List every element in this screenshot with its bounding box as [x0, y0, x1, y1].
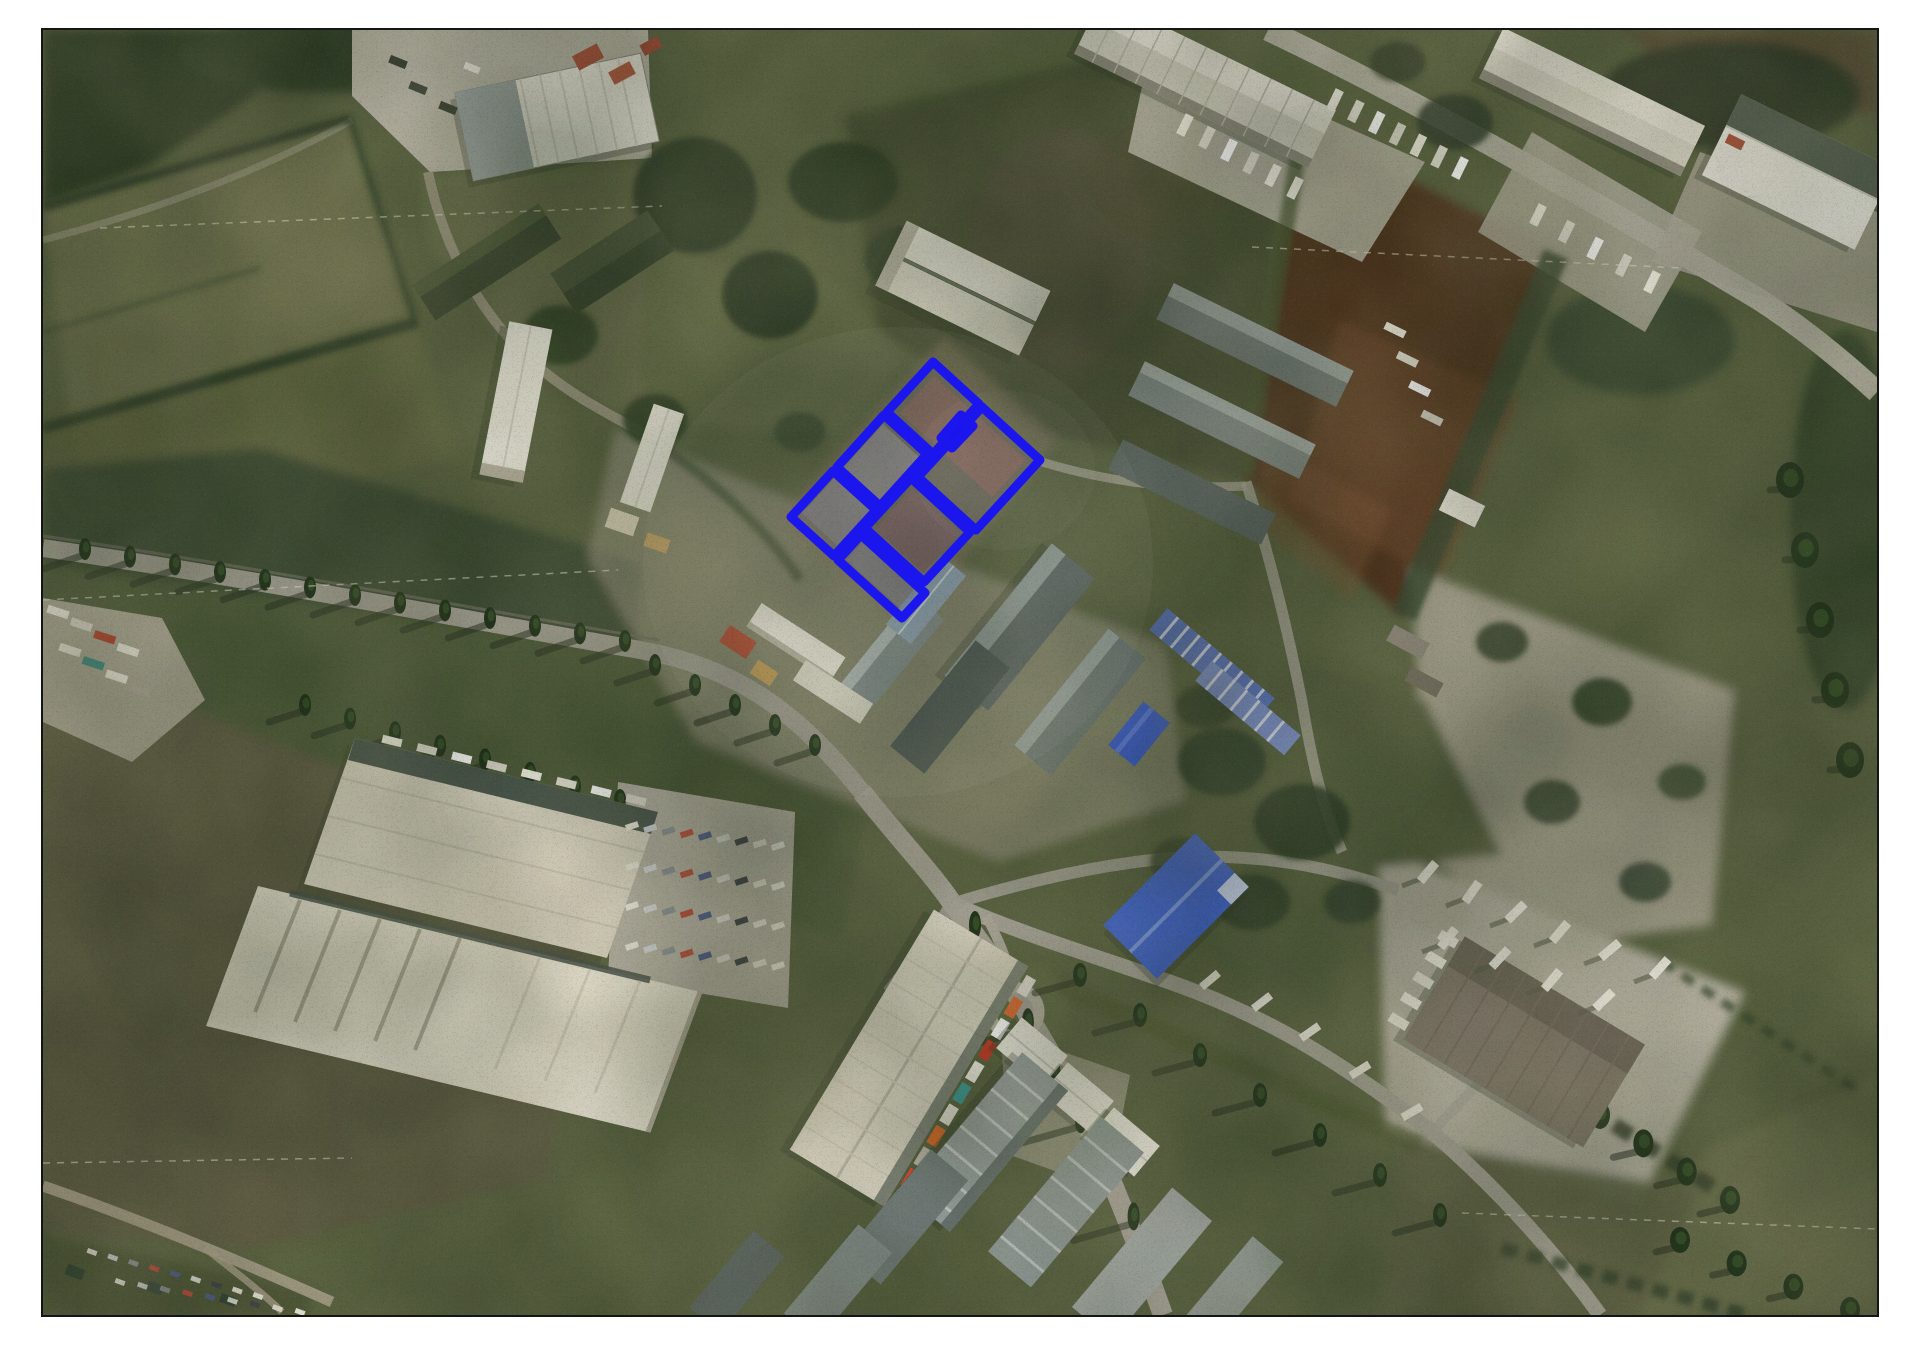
texture-overlay [43, 30, 1877, 1315]
document-page [0, 0, 1920, 1358]
aerial-map [43, 30, 1877, 1315]
satellite-photo-frame [41, 28, 1879, 1317]
